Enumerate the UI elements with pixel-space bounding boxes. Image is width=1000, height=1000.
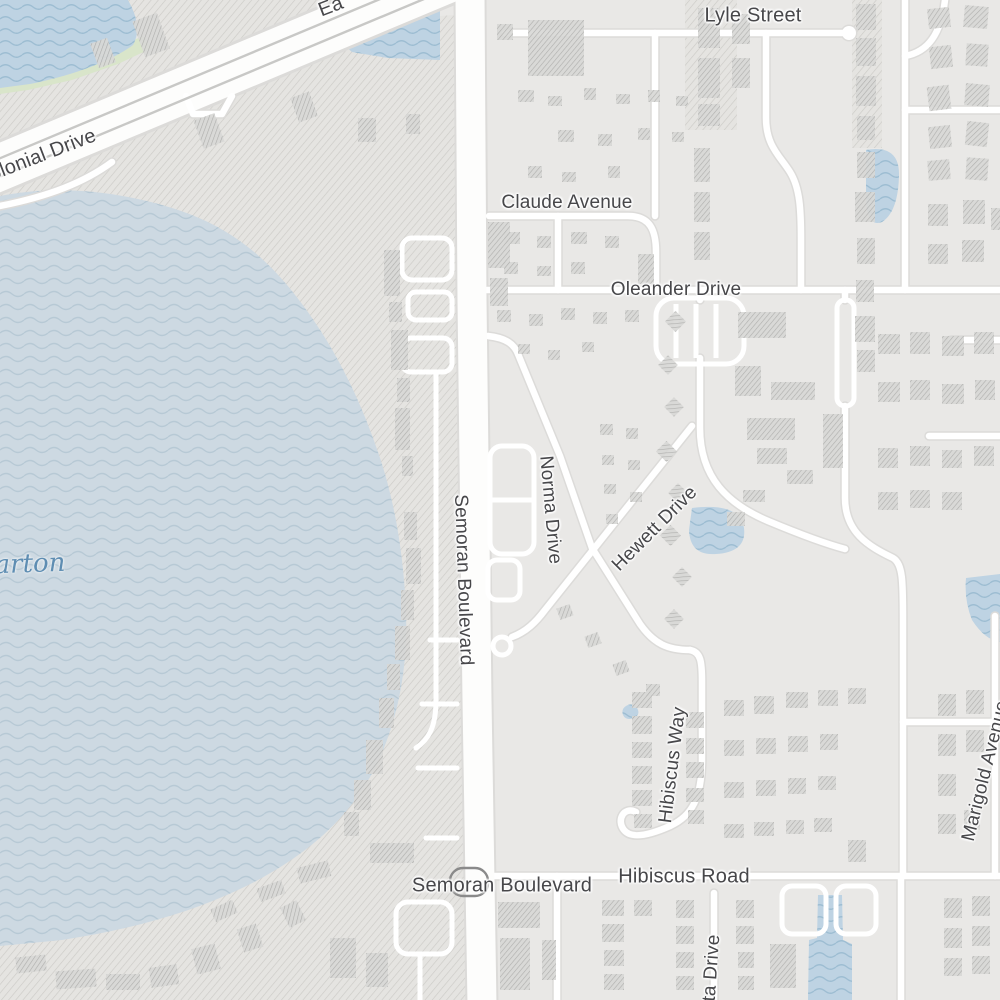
map-graphics (0, 0, 1000, 1000)
map-canvas[interactable]: Lyle StreetEaColonial DriveClaude Avenue… (0, 0, 1000, 1000)
